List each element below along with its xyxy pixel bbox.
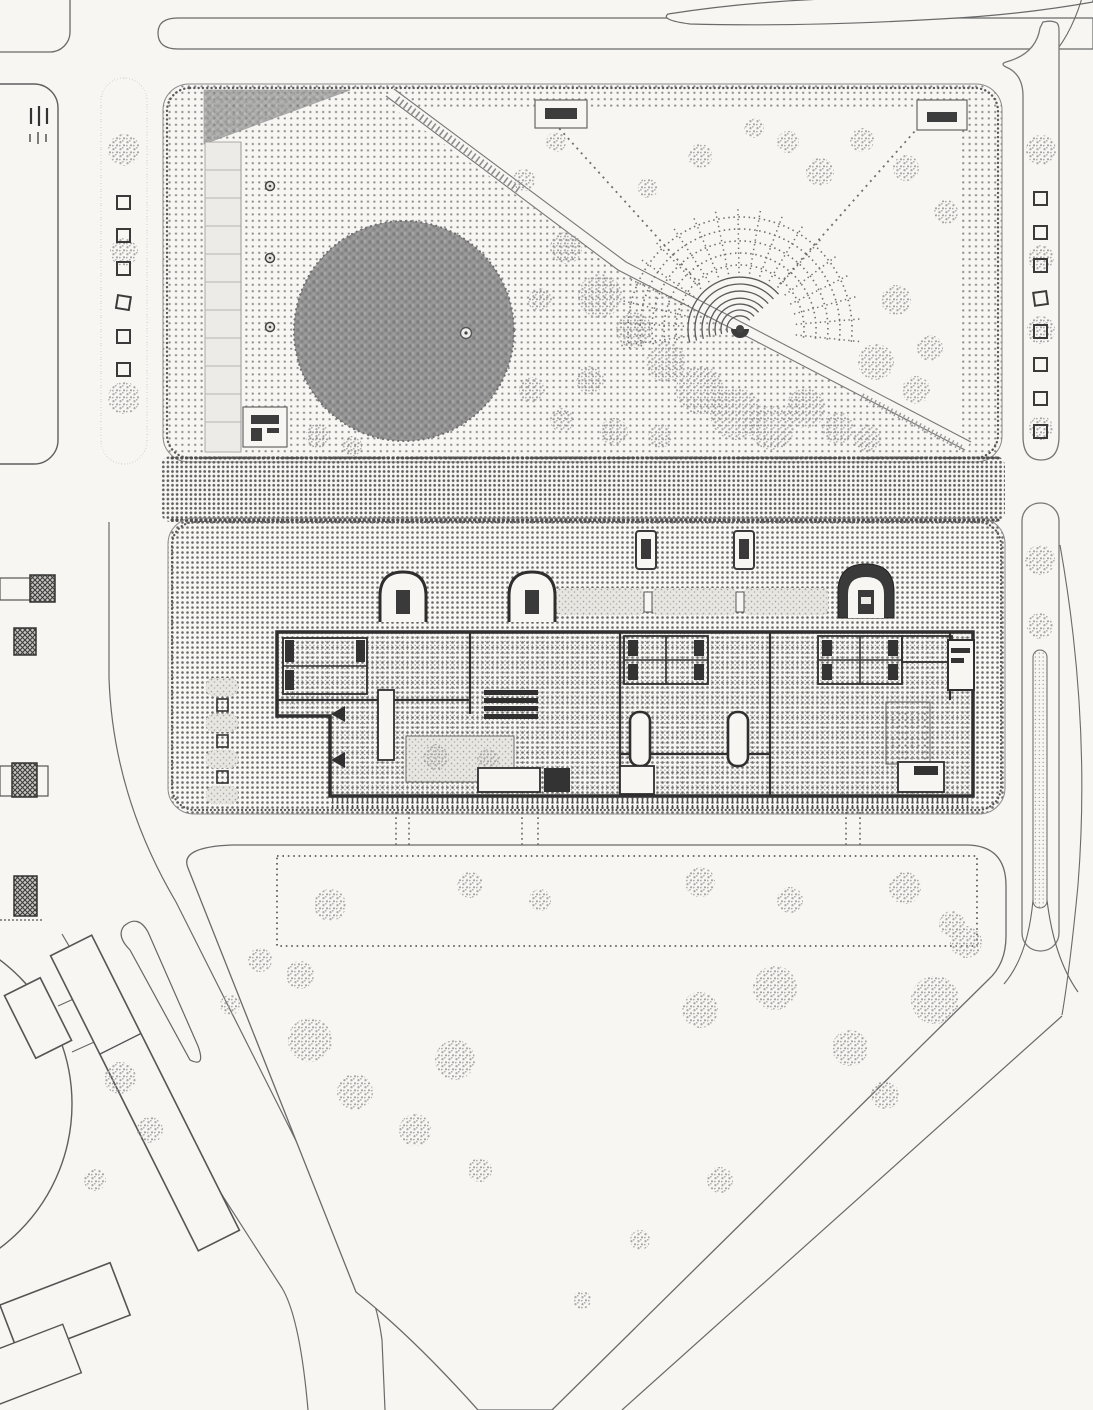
tree-cluster [832, 1030, 868, 1066]
median-planting [108, 134, 140, 166]
tree-cluster [342, 436, 362, 456]
planter-connector [644, 592, 652, 612]
tree-cluster [646, 342, 686, 382]
light-column-core [739, 539, 749, 559]
forecourt-planter [652, 588, 736, 615]
tree-cluster [104, 1062, 136, 1094]
room-cell [285, 670, 294, 690]
tree-cluster [893, 155, 919, 181]
plaza-elevator-detail [251, 428, 262, 441]
bottom-room [620, 766, 654, 794]
tree-cluster [777, 131, 799, 153]
tree-cluster [871, 1081, 899, 1109]
west-planter [206, 750, 238, 768]
tree-cluster [854, 424, 882, 452]
tree-cluster [288, 1018, 332, 1062]
colonnade-band [332, 797, 972, 809]
tree-cluster [435, 1040, 475, 1080]
tree-cluster [648, 424, 672, 448]
tree-cluster [546, 132, 566, 152]
tree-cluster [220, 995, 240, 1015]
tree-cluster [513, 169, 535, 191]
tree-cluster [306, 424, 330, 448]
tree-cluster [137, 1117, 163, 1143]
east-notch-bars [951, 648, 970, 653]
hatched-building [14, 628, 36, 655]
hatched-building [30, 575, 55, 602]
tree-cluster [528, 288, 552, 312]
tree-cluster [314, 889, 346, 921]
flagpole-center [269, 326, 272, 329]
room-cell [822, 664, 832, 680]
room-cell [694, 664, 704, 680]
skylight-arch-core [396, 590, 410, 614]
room-cell [822, 640, 832, 656]
plaza-elevator-structure [243, 407, 287, 447]
plaza-stair-detail [927, 112, 957, 122]
tree-cluster [786, 388, 826, 428]
tree-cluster [573, 1291, 591, 1309]
forecourt-planter [556, 588, 644, 615]
tree-cluster [682, 992, 718, 1028]
tree-cluster [889, 872, 921, 904]
room-cell [888, 664, 898, 680]
city-block-top-left [0, 0, 70, 52]
room-cell [694, 640, 704, 656]
tree-cluster [550, 232, 582, 264]
tree-cluster [578, 274, 622, 318]
tree-cluster [777, 887, 803, 913]
east-notch-bars [951, 658, 964, 663]
tree-cluster [576, 366, 604, 394]
forecourt-planter [744, 588, 828, 615]
tree-cluster [688, 144, 712, 168]
column-capsule [728, 712, 748, 766]
room-cell [356, 640, 365, 662]
median-planting [1029, 416, 1053, 440]
plaza-elevator-detail [251, 415, 279, 424]
park-parcel [187, 845, 1006, 1410]
paved-court [886, 702, 930, 764]
tree-cluster [248, 948, 272, 972]
bottom-room-dark [544, 768, 570, 792]
tree-cluster [881, 285, 911, 315]
road-curve-right [1060, 545, 1082, 1015]
west-planter [206, 714, 238, 732]
tree-cluster [638, 178, 658, 198]
median-planting [1025, 545, 1055, 575]
pond-fountain-center [464, 331, 467, 334]
street-band [161, 456, 1005, 522]
tree-cluster [911, 976, 959, 1024]
plaza-stair-detail [545, 108, 577, 119]
room-cell [285, 640, 294, 662]
amphitheater-center [736, 325, 744, 333]
plaza-elevator-detail [267, 428, 279, 433]
room-cell [628, 664, 638, 680]
skylight-arch-core [525, 590, 539, 614]
tree-cluster [850, 128, 874, 152]
flagpole-center [269, 185, 272, 188]
tree-cluster [902, 376, 930, 404]
tree-cluster [822, 412, 854, 444]
tree-cluster [707, 1167, 733, 1193]
building-annex-southwest [4, 978, 71, 1059]
tree-cluster [934, 200, 958, 224]
hatched-building [12, 763, 37, 797]
tree-cluster [468, 1158, 492, 1182]
site-plan-svg [0, 0, 1093, 1410]
pond [294, 221, 514, 441]
site-plan-page [0, 0, 1093, 1410]
room-cell [628, 640, 638, 656]
tree-cluster [806, 158, 834, 186]
median-planting [1026, 135, 1056, 165]
median-ramp-island [1033, 650, 1047, 908]
tree-cluster [519, 377, 545, 403]
median-planting [1027, 613, 1053, 639]
tree-cluster [550, 408, 574, 432]
median-planting [108, 382, 140, 414]
bottom-room [478, 768, 540, 792]
tree-cluster [286, 961, 314, 989]
dark-arch-slit [861, 597, 871, 604]
tree-cluster [399, 1114, 431, 1146]
column-capsule [630, 712, 650, 766]
tree-cluster [529, 889, 551, 911]
tree-cluster [630, 1230, 650, 1250]
west-planter [206, 786, 238, 804]
hatched-building [14, 876, 37, 916]
median-planting [1027, 316, 1055, 344]
street-median-top [158, 18, 1093, 49]
east-notch [948, 640, 974, 690]
tree-cluster [950, 926, 982, 958]
tree-cluster [600, 418, 628, 446]
tree-cluster [457, 872, 483, 898]
room-cell [888, 640, 898, 656]
tree-cluster [753, 966, 797, 1010]
tree-cluster [616, 312, 652, 348]
median-right-upper [1003, 21, 1059, 460]
tree-cluster [84, 1169, 106, 1191]
interior-slab [378, 690, 394, 760]
stair-ramp-strip [205, 142, 241, 452]
planter-connector [736, 592, 744, 612]
tree-cluster [337, 1074, 373, 1110]
tree-cluster [917, 335, 943, 361]
building-bar-southwest [51, 935, 240, 1251]
flagpole-center [269, 257, 272, 260]
city-block-left [0, 84, 58, 464]
tree-cluster [744, 118, 764, 138]
tree-cluster [423, 744, 449, 770]
bottom-room-dark [914, 766, 938, 775]
light-column-core [641, 539, 651, 559]
west-planter [206, 678, 238, 696]
tree-cluster [858, 344, 894, 380]
tree-cluster [685, 867, 715, 897]
